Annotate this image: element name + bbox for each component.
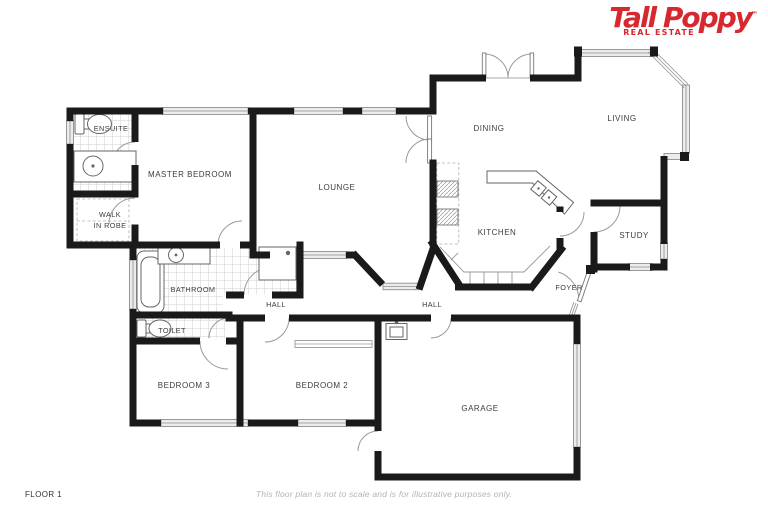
- room-label-walk-in-robe-1: WALK: [99, 210, 121, 219]
- room-label-toilet: TOILET: [158, 326, 186, 335]
- room-label-walk-in-robe-2: IN ROBE: [94, 221, 127, 230]
- room-label-dining: DINING: [474, 124, 505, 133]
- room-label-living: LIVING: [607, 114, 636, 123]
- garage-door: [574, 344, 581, 447]
- kitchen-appliances: [437, 163, 459, 244]
- room-label-garage: GARAGE: [461, 404, 498, 413]
- robe-shelves: [77, 199, 129, 241]
- room-label-kitchen: KITCHEN: [478, 228, 517, 237]
- room-label-master-bedroom: MASTER BEDROOM: [148, 170, 232, 179]
- room-label-study: STUDY: [619, 231, 649, 240]
- disclaimer-text: This floor plan is not to scale and is f…: [0, 489, 768, 499]
- room-label-hall-right: HALL: [422, 300, 442, 309]
- room-label-lounge: LOUNGE: [319, 183, 356, 192]
- ensuite-vanity-icon: [74, 151, 136, 182]
- room-label-bedroom3: BEDROOM 3: [158, 381, 211, 390]
- bedroom2-wardrobe: [295, 341, 372, 348]
- room-label-bedroom2: BEDROOM 2: [296, 381, 349, 390]
- laundry-tub-icon: [386, 321, 407, 340]
- bathroom-vanity-icon: [158, 247, 210, 264]
- room-label-foyer: FOYER: [555, 283, 582, 292]
- room-label-hall-left: HALL: [266, 300, 286, 309]
- floorplan-page: Tall Poppy™ REAL ESTATE: [0, 0, 768, 512]
- floorplan-drawing: ENSUITE MASTER BEDROOM WALK IN ROBE LOUN…: [0, 0, 768, 512]
- room-label-ensuite: ENSUITE: [94, 124, 128, 133]
- room-label-bathroom: BATHROOM: [171, 285, 216, 294]
